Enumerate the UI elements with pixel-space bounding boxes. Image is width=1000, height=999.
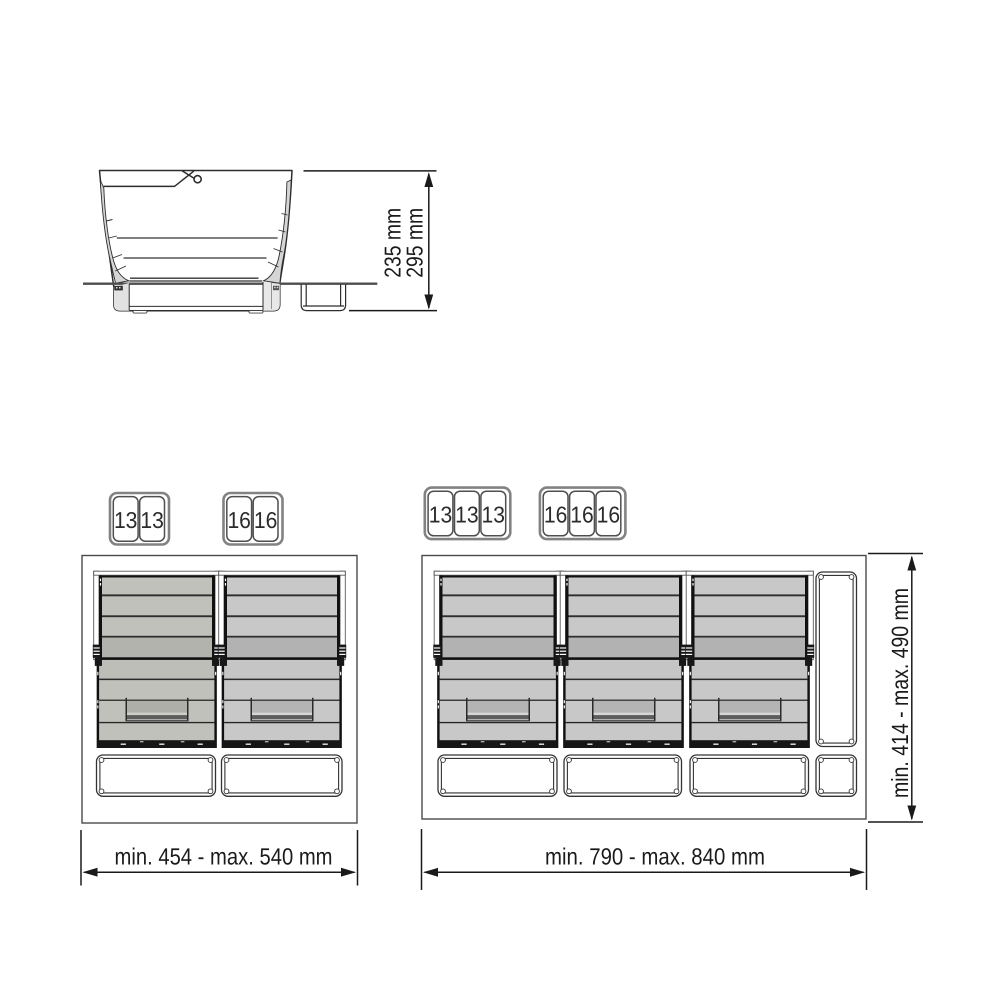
svg-text:16: 16 (597, 502, 621, 528)
svg-text:min. 454 - max. 540 mm: min. 454 - max. 540 mm (115, 844, 333, 870)
svg-text:13: 13 (455, 502, 479, 528)
svg-text:13: 13 (140, 507, 164, 533)
svg-text:13: 13 (429, 502, 453, 528)
svg-text:min. 790 - max. 840 mm: min. 790 - max. 840 mm (545, 844, 765, 870)
svg-text:16: 16 (227, 507, 251, 533)
svg-text:16: 16 (570, 502, 594, 528)
svg-text:min. 414 - max. 490 mm: min. 414 - max. 490 mm (887, 588, 913, 798)
svg-text:295 mm: 295 mm (402, 208, 428, 278)
svg-text:13: 13 (482, 502, 506, 528)
svg-text:16: 16 (544, 502, 568, 528)
svg-text:13: 13 (114, 507, 138, 533)
svg-text:16: 16 (254, 507, 278, 533)
